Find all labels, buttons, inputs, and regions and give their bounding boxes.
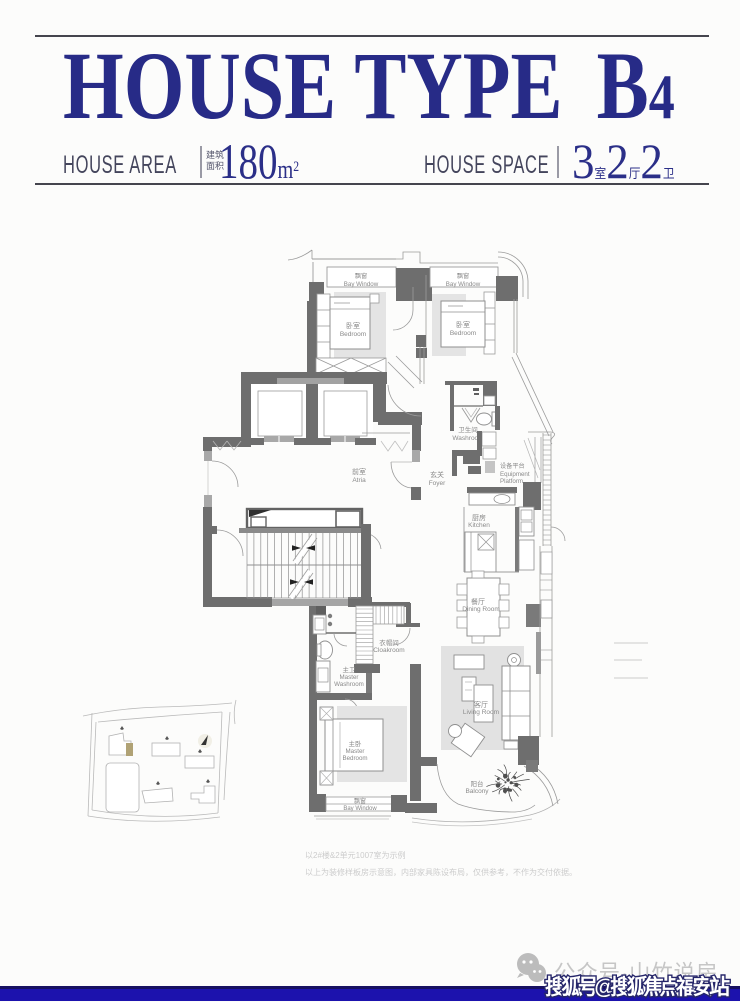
svg-text:Balcony: Balcony: [465, 788, 489, 795]
svg-text:卧室: 卧室: [456, 320, 470, 329]
svg-text:Kitchen: Kitchen: [468, 522, 490, 529]
svg-text:Master: Master: [340, 674, 359, 681]
svg-text:前室: 前室: [352, 467, 366, 476]
svg-text:Bedroom: Bedroom: [342, 755, 367, 762]
svg-text:Bay Window: Bay Window: [343, 806, 377, 812]
svg-text:Cloakroom: Cloakroom: [373, 647, 404, 654]
svg-text:Atria: Atria: [352, 477, 366, 484]
svg-text:主卫: 主卫: [343, 665, 357, 674]
svg-text:卧室: 卧室: [346, 321, 360, 330]
svg-text:Bedroom: Bedroom: [450, 330, 476, 337]
svg-text:Platform: Platform: [500, 478, 523, 485]
svg-text:设备平台: 设备平台: [500, 462, 525, 470]
svg-text:搜狐号@搜狐焦点福安站: 搜狐号@搜狐焦点福安站: [545, 975, 730, 999]
svg-text:飘窗: 飘窗: [355, 272, 367, 280]
svg-text:飘窗: 飘窗: [354, 797, 366, 805]
svg-text:Dining Room: Dining Room: [462, 606, 500, 613]
svg-text:主卧: 主卧: [349, 739, 363, 748]
svg-text:Equipment: Equipment: [500, 471, 530, 478]
svg-text:Living Room: Living Room: [463, 709, 499, 716]
svg-text:Bay Window: Bay Window: [344, 281, 379, 288]
svg-text:Bedroom: Bedroom: [340, 331, 366, 338]
svg-text:飘窗: 飘窗: [457, 272, 469, 280]
svg-text:客厅: 客厅: [474, 700, 488, 709]
svg-text:玄关: 玄关: [430, 470, 444, 479]
svg-text:Washroom: Washroom: [334, 681, 364, 688]
svg-text:Foyer: Foyer: [429, 480, 446, 487]
svg-text:阳台: 阳台: [471, 779, 484, 788]
svg-text:卫生间: 卫生间: [458, 425, 478, 434]
svg-text:厨房: 厨房: [472, 513, 486, 522]
svg-text:Master: Master: [346, 748, 365, 755]
svg-text:Bay Window: Bay Window: [446, 281, 481, 288]
svg-text:餐厅: 餐厅: [471, 597, 485, 606]
svg-text:衣帽间: 衣帽间: [379, 638, 399, 647]
